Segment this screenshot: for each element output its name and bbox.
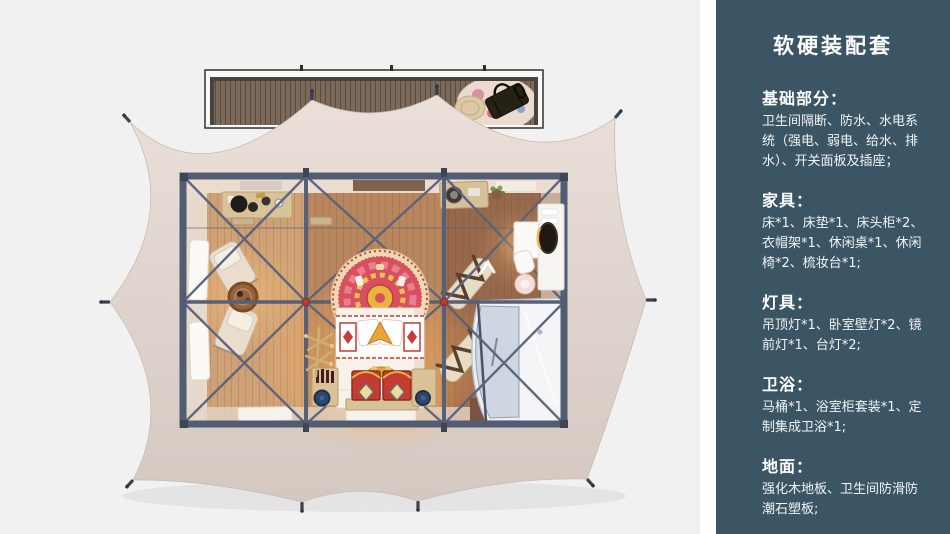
- section-body: 吊顶灯*1、卧室壁灯*2、镜前灯*1、台灯*2;: [762, 316, 926, 356]
- leisure-table: [229, 283, 257, 311]
- bathroom-pod: [470, 298, 561, 421]
- deck-bracket: [483, 65, 486, 71]
- floorplan-render: [0, 0, 700, 534]
- frame-connector: [302, 298, 309, 305]
- hat: [231, 196, 248, 213]
- panel-section-bath: 卫浴： 马桶*1、浴室柜套装*1、定制集成卫浴*1;: [762, 371, 926, 438]
- ceiling-vent: [353, 180, 425, 191]
- window: [188, 240, 209, 301]
- floorplan-figure: [0, 0, 700, 534]
- kettle: [262, 197, 271, 206]
- section-heading: 家具：: [762, 187, 926, 211]
- panel-section-furniture: 家具： 床*1、床垫*1、床头柜*2、衣帽架*1、休闲桌*1、休闲椅*2、梳妆台…: [762, 187, 926, 274]
- floor-mat: [238, 407, 292, 422]
- window: [189, 322, 210, 381]
- deck-bracket: [390, 65, 393, 71]
- panel-section-floor: 地面： 强化木地板、卫生间防滑防潮石塑板;: [762, 453, 926, 520]
- divider-strip: [700, 0, 716, 534]
- ceiling-vent: [240, 181, 282, 190]
- page: 软硬装配套 基础部分： 卫生间隔断、防水、水电系统（强电、弱电、给水、排水）、开…: [0, 0, 950, 534]
- panel-title: 软硬装配套: [716, 30, 950, 60]
- section-body: 马桶*1、浴室柜套装*1、定制集成卫浴*1;: [762, 398, 926, 438]
- deck-bracket: [300, 65, 303, 71]
- section-body: 卫生间隔断、防水、水电系统（强电、弱电、给水、排水）、开关面板及插座；: [762, 112, 926, 172]
- vanity-mirror: [539, 223, 557, 253]
- section-heading: 灯具：: [762, 289, 926, 313]
- bench-stool: [310, 217, 332, 225]
- section-heading: 卫浴：: [762, 371, 926, 395]
- bedside-cabinet: [412, 369, 436, 406]
- frame-connector: [440, 298, 447, 305]
- section-body: 强化木地板、卫生间防滑防潮石塑板;: [762, 480, 926, 520]
- bench-stool: [232, 218, 254, 225]
- panel-section-lighting: 灯具： 吊顶灯*1、卧室壁灯*2、镜前灯*1、台灯*2;: [762, 289, 926, 356]
- section-heading: 基础部分：: [762, 85, 926, 109]
- panel-sections: 基础部分： 卫生间隔断、防水、水电系统（强电、弱电、给水、排水）、开关面板及插座…: [716, 60, 950, 520]
- panel-section-basics: 基础部分： 卫生间隔断、防水、水电系统（强电、弱电、给水、排水）、开关面板及插座…: [762, 85, 926, 172]
- section-heading: 地面：: [762, 453, 926, 477]
- info-panel: 软硬装配套 基础部分： 卫生间隔断、防水、水电系统（强电、弱电、给水、排水）、开…: [716, 0, 950, 534]
- section-body: 床*1、床垫*1、床头柜*2、衣帽架*1、休闲桌*1、休闲椅*2、梳妆台*1;: [762, 214, 926, 274]
